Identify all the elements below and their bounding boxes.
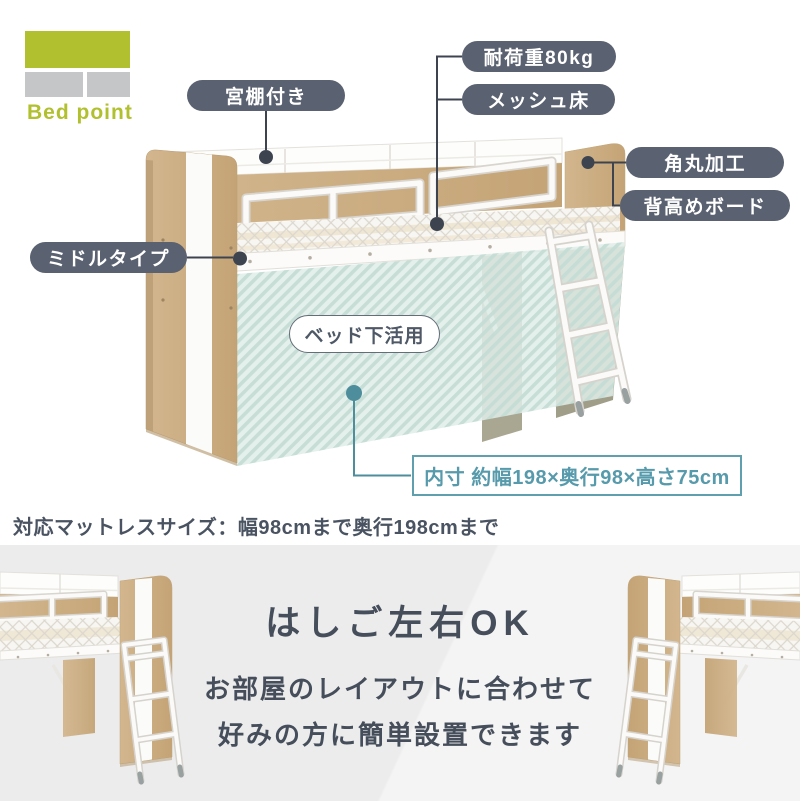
bed-left-panel <box>146 150 237 466</box>
logo-text: Bed point <box>27 101 133 125</box>
product-feature-panel: Bed point 宮棚付き 耐荷重80kg メッシュ床 角丸加工 背高めボード… <box>0 0 800 801</box>
ladder-section-text: はしご左右OK お部屋のレイアウトに合わせて 好みの方に簡単設置できます <box>150 595 650 758</box>
callout-middle-type: ミドルタイプ <box>30 242 187 273</box>
ladder-section-title: はしご左右OK <box>150 595 650 646</box>
callout-dot-inner-size <box>346 385 362 401</box>
logo-green-block <box>25 31 130 68</box>
callout-shelf: 宮棚付き <box>187 80 345 111</box>
callout-load-capacity: 耐荷重80kg <box>462 41 616 72</box>
inner-dimensions-box: 内寸 約幅198×奥行98×高さ75cm <box>412 455 742 496</box>
callout-tall-board: 背高めボード <box>620 190 790 221</box>
ladder-section: はしご左右OK お部屋のレイアウトに合わせて 好みの方に簡単設置できます <box>0 545 800 801</box>
callout-dot-rounded <box>582 156 595 169</box>
callout-dot-shelf <box>259 150 273 164</box>
ladder-section-line1: お部屋のレイアウトに合わせて <box>150 666 650 712</box>
callout-mesh-floor: メッシュ床 <box>462 84 615 115</box>
logo-gray-block-left <box>25 72 83 97</box>
callout-dot-middle <box>233 252 247 266</box>
ladder-section-line2: 好みの方に簡単設置できます <box>150 712 650 758</box>
mattress-size-note: 対応マットレスサイズ：幅98cmまで奥行198cmまで <box>13 511 499 540</box>
callout-dot-mesh <box>430 217 444 231</box>
callout-under-bed: ベッド下活用 <box>289 315 440 353</box>
callout-rounded-corners: 角丸加工 <box>626 147 784 178</box>
logo-gray-block-right <box>87 72 130 97</box>
